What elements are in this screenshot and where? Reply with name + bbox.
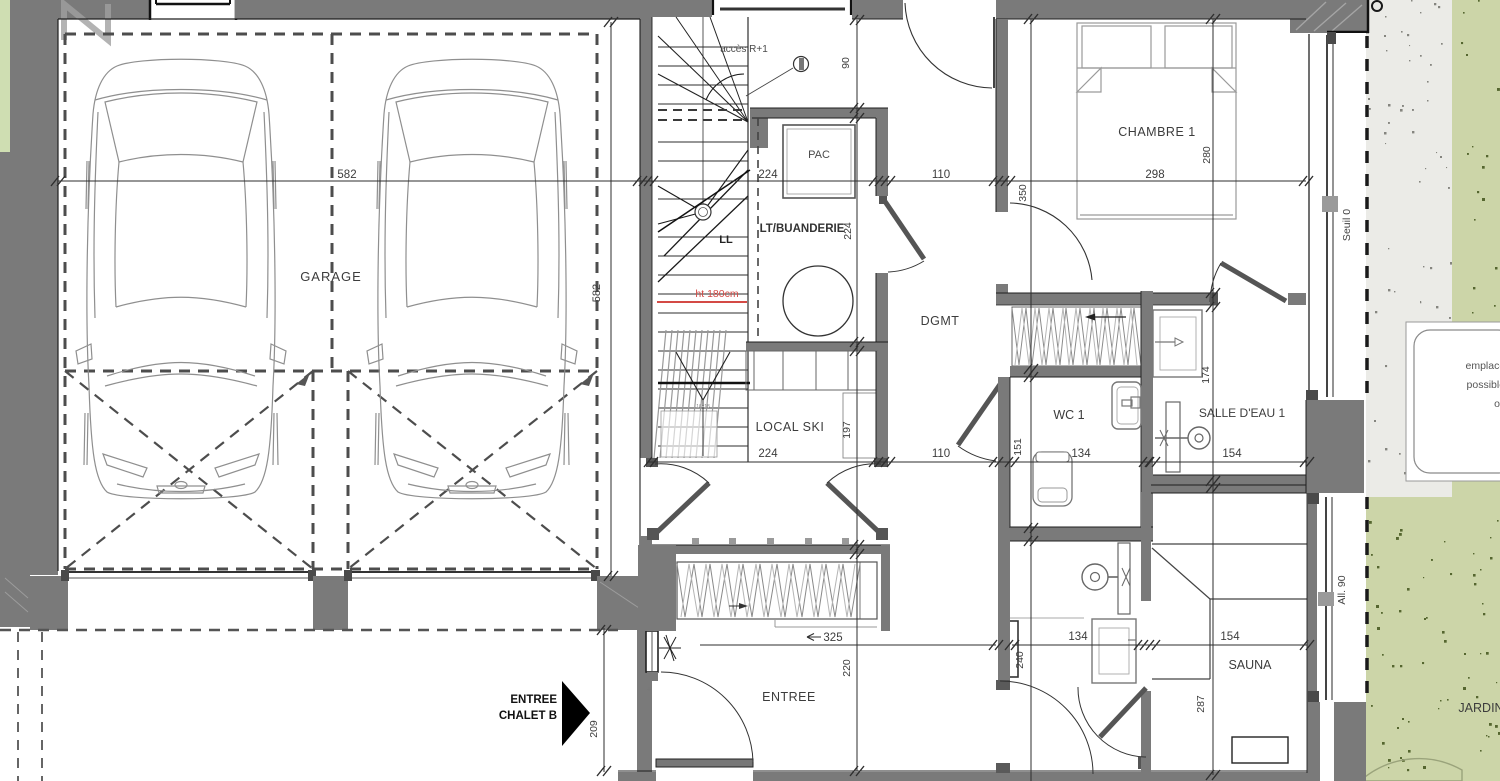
svg-text:287: 287 [1195, 695, 1207, 713]
svg-text:All. 90: All. 90 [1336, 575, 1348, 604]
svg-text:209: 209 [588, 720, 600, 738]
svg-text:ht 180cm: ht 180cm [695, 288, 738, 300]
svg-text:LOCAL SKI: LOCAL SKI [756, 420, 825, 434]
svg-text:SALLE D'EAU 1: SALLE D'EAU 1 [1199, 406, 1286, 420]
svg-text:LL: LL [719, 234, 733, 246]
svg-text:90: 90 [840, 57, 852, 69]
svg-text:ENTREE: ENTREE [510, 694, 557, 706]
svg-text:220: 220 [841, 659, 853, 677]
svg-text:224: 224 [758, 169, 778, 181]
svg-text:o: o [1494, 398, 1500, 410]
svg-text:154: 154 [1222, 448, 1242, 460]
svg-text:PAC: PAC [808, 149, 830, 161]
svg-text:134: 134 [1068, 631, 1088, 643]
svg-text:DGMT: DGMT [921, 314, 960, 328]
svg-text:110: 110 [932, 169, 950, 181]
svg-text:possible d'un: possible d'un [1467, 379, 1500, 391]
svg-text:emplacement: emplacement [1465, 360, 1500, 372]
svg-text:CHALET B: CHALET B [499, 710, 557, 722]
svg-text:240: 240 [1014, 651, 1026, 669]
svg-text:JARDIN: JARDIN [1458, 701, 1500, 715]
svg-text:134: 134 [1071, 448, 1091, 460]
svg-text:WC 1: WC 1 [1053, 408, 1084, 422]
svg-text:Seuil 0: Seuil 0 [1341, 209, 1353, 241]
svg-text:582: 582 [337, 169, 356, 181]
svg-text:197: 197 [841, 421, 853, 439]
svg-text:accès R+1: accès R+1 [720, 44, 768, 55]
svg-text:ENTREE: ENTREE [762, 690, 816, 704]
svg-text:224: 224 [758, 448, 778, 460]
svg-text:224: 224 [842, 222, 854, 240]
svg-text:154: 154 [1220, 631, 1240, 643]
svg-text:SAUNA: SAUNA [1228, 658, 1272, 672]
svg-text:16x18: 16x18 [696, 404, 710, 410]
svg-text:151: 151 [1012, 438, 1024, 456]
svg-text:LT/BUANDERIE: LT/BUANDERIE [760, 223, 845, 235]
svg-text:325: 325 [823, 632, 842, 644]
svg-text:350: 350 [1017, 184, 1029, 202]
svg-text:CHAMBRE 1: CHAMBRE 1 [1118, 125, 1195, 139]
svg-text:110: 110 [932, 448, 950, 460]
svg-text:582: 582 [591, 284, 603, 302]
svg-text:GARAGE: GARAGE [300, 269, 362, 284]
svg-text:+: + [647, 685, 652, 694]
svg-text:280: 280 [1201, 146, 1213, 164]
svg-text:298: 298 [1145, 169, 1164, 181]
svg-text:174: 174 [1200, 366, 1212, 384]
